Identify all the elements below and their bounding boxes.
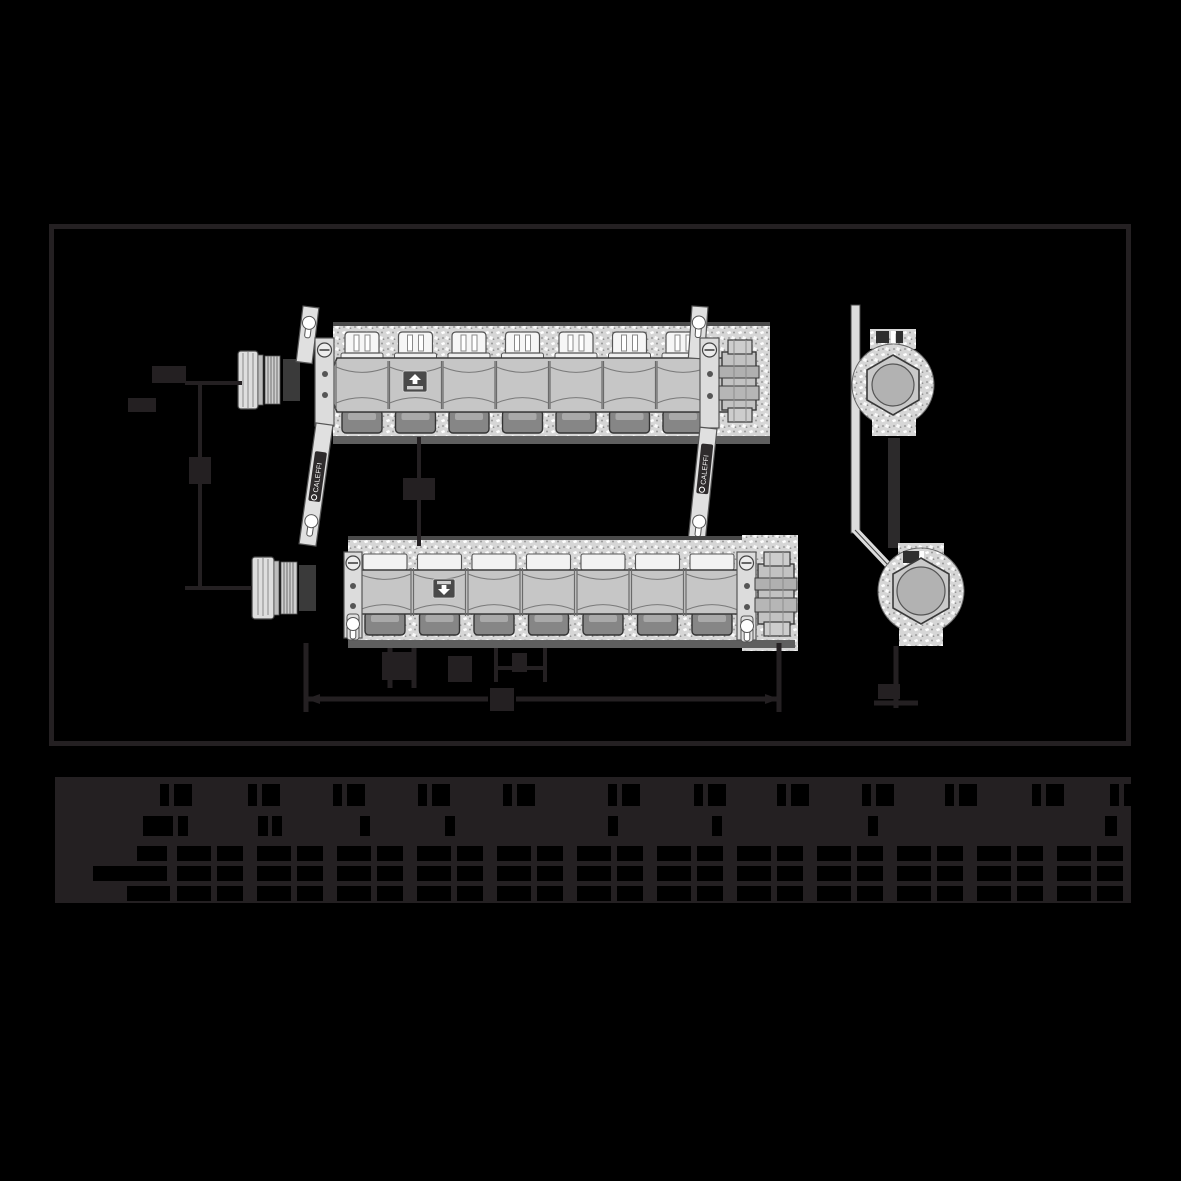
dim-letter-blob	[448, 656, 472, 682]
side-view-flow-port	[852, 329, 934, 436]
dim-letter-blob	[189, 457, 211, 484]
header-knockout-text	[143, 816, 173, 836]
wall-bracket-bottom-right	[737, 552, 756, 642]
return-direction-badge	[433, 579, 455, 598]
table-cell	[817, 846, 851, 861]
header-knockout-text	[791, 784, 809, 806]
outlet-nut	[663, 410, 703, 433]
header-knockout-text	[178, 816, 188, 836]
port-bore	[897, 567, 945, 615]
outlet-nut	[365, 612, 405, 635]
header-knockout-text	[876, 784, 894, 806]
table-cell	[457, 846, 483, 861]
header-knockout-text	[248, 784, 257, 806]
table-cell	[1097, 866, 1123, 881]
spacer	[283, 359, 300, 401]
threaded-tailpiece	[281, 562, 297, 614]
screw-icon	[740, 556, 754, 570]
spacer	[299, 565, 316, 611]
lockshield-cap	[363, 554, 407, 570]
header-knockout-text	[712, 816, 722, 836]
outlet-nut	[449, 410, 489, 433]
threaded-tailpiece	[265, 356, 280, 404]
table-cell	[297, 886, 323, 901]
table-cell	[457, 886, 483, 901]
table-cell	[977, 886, 1011, 901]
table-cell	[737, 846, 771, 861]
table-cell	[537, 886, 563, 901]
dim-letter-blob	[382, 652, 416, 680]
header-knockout-text	[1124, 784, 1131, 806]
table-cell	[737, 886, 771, 901]
screw-icon	[703, 343, 717, 357]
table-cell	[897, 846, 931, 861]
outlets-row	[365, 612, 732, 635]
table-cell	[537, 866, 563, 881]
table-cell	[257, 886, 291, 901]
header-knockout-text	[868, 816, 878, 836]
row-label-cell	[137, 846, 167, 861]
table-cell	[937, 886, 963, 901]
lockshield-cap	[690, 554, 734, 570]
row-label-cell	[127, 886, 170, 901]
table-cell	[497, 866, 531, 881]
table-cell	[817, 866, 851, 881]
table-cell	[377, 846, 403, 861]
header-knockout-text	[1110, 784, 1119, 806]
side-view	[851, 305, 964, 646]
dim-letter-blob	[490, 688, 514, 711]
table-cell	[417, 866, 451, 881]
left-union-fitting	[252, 557, 316, 619]
header-knockout-text	[777, 784, 786, 806]
header-knockout-text	[262, 784, 280, 806]
header-knockout-text	[1032, 784, 1041, 806]
table-cell	[937, 846, 963, 861]
header-knockout-text	[347, 784, 365, 806]
header-knockout-text	[360, 816, 370, 836]
dim-letter-blob	[403, 478, 435, 500]
dimensions-table	[55, 777, 1131, 903]
table-cell	[617, 846, 643, 861]
lockshield-cap	[527, 554, 571, 570]
outlet-nut	[638, 612, 678, 635]
table-cell	[1057, 886, 1091, 901]
table-cell	[377, 866, 403, 881]
outlet-nut	[396, 410, 436, 433]
table-cell	[657, 886, 691, 901]
header-knockout-text	[1105, 816, 1117, 836]
header-knockout-text	[517, 784, 535, 806]
table-cell	[457, 866, 483, 881]
table-cell	[337, 886, 371, 901]
dim-letter-blob	[128, 398, 156, 412]
table-cell	[577, 846, 611, 861]
dim-letter-blob	[152, 366, 186, 383]
table-cell	[617, 866, 643, 881]
header-knockout-text	[945, 784, 954, 806]
table-cell	[617, 886, 643, 901]
outlet-nut	[474, 612, 514, 635]
table-cell	[337, 846, 371, 861]
header-knockout-text	[272, 816, 282, 836]
port-bore	[872, 364, 914, 406]
table-cell	[217, 846, 243, 861]
outlet-nut	[420, 612, 460, 635]
table-cell	[657, 846, 691, 861]
screenshot-canvas: CALEFFI	[0, 0, 1181, 1181]
header-knockout-text	[694, 784, 703, 806]
outlet-nut	[610, 410, 650, 433]
table-cell	[857, 846, 883, 861]
table-cell	[697, 886, 723, 901]
table-cell	[257, 846, 291, 861]
outlet-nut	[692, 612, 732, 635]
table-cell	[577, 866, 611, 881]
bracket-edge	[851, 305, 860, 533]
dim-letter-blob	[512, 653, 527, 672]
table-cell	[857, 866, 883, 881]
screw-icon	[318, 343, 332, 357]
side-view-return-port	[878, 543, 964, 646]
header-knockout-text	[608, 784, 617, 806]
table-cell	[817, 886, 851, 901]
header-knockout-text	[608, 816, 618, 836]
header-knockout-text	[418, 784, 427, 806]
table-cell	[297, 846, 323, 861]
table-cell	[1057, 846, 1091, 861]
lockshield-cap	[581, 554, 625, 570]
table-cell	[297, 866, 323, 881]
end-fittings-bottom	[755, 552, 797, 636]
table-cell	[1017, 846, 1043, 861]
dim-letter-blob	[878, 684, 900, 699]
row-label-cell	[93, 866, 167, 881]
table-cell	[537, 846, 563, 861]
table-cell	[257, 866, 291, 881]
table-cell	[1057, 866, 1091, 881]
table-cell	[1017, 886, 1043, 901]
outlet-nut	[342, 410, 382, 433]
flow-direction-badge	[403, 371, 427, 392]
table-cell	[377, 886, 403, 901]
lockshield-caps-row	[363, 554, 734, 570]
header-knockout-text	[445, 816, 455, 836]
header-knockout-text	[503, 784, 512, 806]
header-knockout-text	[959, 784, 977, 806]
return-manifold	[252, 535, 798, 651]
manifold-technical-drawing: CALEFFI	[0, 0, 1181, 1181]
table-cell	[497, 846, 531, 861]
lockshield-cap	[472, 554, 516, 570]
header-knockout-text	[333, 784, 342, 806]
table-cell	[217, 866, 243, 881]
lockshield-cap	[418, 554, 462, 570]
outlet-nut	[529, 612, 569, 635]
header-knockout-text	[1046, 784, 1064, 806]
table-cell	[177, 886, 211, 901]
table-cell	[657, 866, 691, 881]
table-cell	[857, 886, 883, 901]
wall-bracket-bottom-left	[344, 552, 362, 640]
header-knockout-text	[174, 784, 192, 806]
table-cell	[697, 846, 723, 861]
table-cell	[737, 866, 771, 881]
table-cell	[1017, 866, 1043, 881]
table-cell	[417, 846, 451, 861]
header-knockout-text	[160, 784, 169, 806]
header-knockout-text	[708, 784, 726, 806]
table-cell	[777, 846, 803, 861]
table-cell	[417, 886, 451, 901]
outlets-row	[342, 410, 703, 433]
table-cell	[1097, 846, 1123, 861]
header-knockout-text	[622, 784, 640, 806]
table-cell	[337, 866, 371, 881]
table-cell	[777, 866, 803, 881]
table-cell	[697, 866, 723, 881]
table-cell	[177, 846, 211, 861]
outlet-nut	[503, 410, 543, 433]
table-cell	[777, 886, 803, 901]
table-cell	[497, 886, 531, 901]
outlet-nut	[556, 410, 596, 433]
table-cell	[977, 866, 1011, 881]
table-cell	[977, 846, 1011, 861]
end-fittings-top	[719, 340, 759, 422]
table-cell	[897, 886, 931, 901]
header-knockout-text	[862, 784, 871, 806]
lockshield-cap	[636, 554, 680, 570]
table-cell	[177, 866, 211, 881]
table-cell	[577, 886, 611, 901]
left-union-fitting	[238, 351, 300, 409]
wall-bracket-top-left: CALEFFI	[296, 306, 334, 546]
table-cell	[217, 886, 243, 901]
table-cell	[897, 866, 931, 881]
screw-icon	[346, 556, 360, 570]
table-cell	[1097, 886, 1123, 901]
flow-manifold: CALEFFI	[238, 306, 770, 546]
outlet-nut	[583, 612, 623, 635]
connecting-pipe-shadow	[888, 438, 900, 548]
header-knockout-text	[432, 784, 450, 806]
table-cell	[937, 866, 963, 881]
header-knockout-text	[258, 816, 268, 836]
